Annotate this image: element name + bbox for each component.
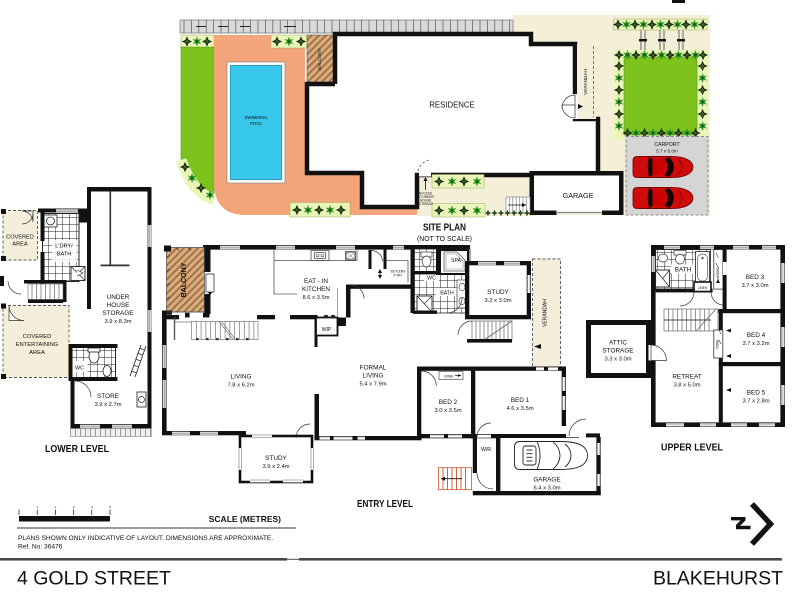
- svg-text:3.7 x 3.0m: 3.7 x 3.0m: [741, 283, 768, 289]
- svg-text:SITE PLAN: SITE PLAN: [423, 222, 466, 234]
- svg-text:STUDY: STUDY: [487, 289, 509, 296]
- svg-text:5.4 x 7.9m: 5.4 x 7.9m: [359, 382, 386, 388]
- svg-text:ENTERTAINING: ENTERTAINING: [16, 342, 59, 348]
- svg-text:FORMAL: FORMAL: [360, 365, 387, 372]
- svg-text:LIVING: LIVING: [363, 373, 384, 380]
- svg-text:ENTRY LEVEL: ENTRY LEVEL: [357, 499, 413, 510]
- svg-text:VERANDAH: VERANDAH: [583, 69, 588, 95]
- svg-text:WIP: WIP: [322, 327, 332, 333]
- svg-text:BALCONY: BALCONY: [181, 262, 188, 297]
- svg-text:STUDY: STUDY: [265, 455, 287, 462]
- svg-text:BED 5: BED 5: [747, 390, 766, 397]
- svg-text:KITCHEN: KITCHEN: [302, 286, 330, 293]
- svg-text:PLANS SHOWN ONLY INDICATIVE OF: PLANS SHOWN ONLY INDICATIVE OF LAYOUT. D…: [18, 535, 273, 542]
- svg-text:STORAGE: STORAGE: [602, 348, 633, 355]
- svg-text:BLAKEHURST: BLAKEHURST: [653, 568, 783, 590]
- svg-text:STORAGE: STORAGE: [418, 202, 434, 206]
- svg-text:8.6 x 3.5m: 8.6 x 3.5m: [302, 295, 329, 301]
- svg-text:CARPORT: CARPORT: [654, 142, 680, 148]
- svg-text:(NOT TO SCALE): (NOT TO SCALE): [417, 234, 472, 243]
- svg-text:UPPER LEVEL: UPPER LEVEL: [661, 443, 723, 454]
- svg-text:RESIDENCE: RESIDENCE: [429, 101, 475, 110]
- svg-text:ROBE: ROBE: [444, 375, 453, 379]
- svg-text:AREA: AREA: [29, 350, 45, 356]
- svg-text:BATH: BATH: [675, 267, 692, 274]
- svg-text:ROBE: ROBE: [716, 267, 720, 276]
- svg-text:6.4 x 3.0m: 6.4 x 3.0m: [533, 486, 560, 492]
- svg-text:GARAGE: GARAGE: [563, 191, 594, 200]
- svg-text:Ref. No: 36476: Ref. No: 36476: [18, 544, 63, 551]
- svg-text:SCALE (METRES): SCALE (METRES): [209, 514, 281, 524]
- svg-text:WC: WC: [75, 366, 84, 372]
- svg-text:BED 1: BED 1: [511, 397, 530, 404]
- svg-text:COVERED: COVERED: [6, 235, 34, 241]
- svg-text:BED 3: BED 3: [746, 274, 765, 281]
- svg-text:ROBE: ROBE: [716, 339, 720, 348]
- svg-text:3.7 x 2.8m: 3.7 x 2.8m: [742, 399, 769, 405]
- svg-text:7.8 x 6.2m: 7.8 x 6.2m: [227, 383, 254, 389]
- svg-text:3.2 x 3.0m: 3.2 x 3.0m: [484, 298, 511, 304]
- svg-text:BED 2: BED 2: [439, 399, 458, 406]
- svg-text:ATTIC: ATTIC: [609, 340, 627, 347]
- svg-text:BED 4: BED 4: [747, 332, 766, 339]
- svg-text:4 GOLD STREET: 4 GOLD STREET: [17, 568, 171, 590]
- svg-text:3.3 x 3.0m: 3.3 x 3.0m: [604, 357, 631, 363]
- svg-text:BATH: BATH: [57, 252, 72, 258]
- svg-text:5.7 x 6.0m: 5.7 x 6.0m: [656, 149, 678, 154]
- svg-text:SPA: SPA: [451, 258, 462, 264]
- svg-text:POOL: POOL: [250, 121, 263, 126]
- svg-text:BATH: BATH: [440, 291, 454, 297]
- svg-text:BALCONY: BALCONY: [317, 48, 322, 70]
- svg-text:UNDER: UNDER: [107, 294, 130, 301]
- svg-text:AREA: AREA: [12, 242, 28, 248]
- svg-text:3.0 x 3.5m: 3.0 x 3.5m: [434, 408, 461, 414]
- svg-text:SWIMMING: SWIMMING: [245, 115, 269, 120]
- svg-text:3.7 x 3.2m: 3.7 x 3.2m: [742, 341, 769, 347]
- svg-text:WIR: WIR: [481, 447, 491, 453]
- svg-text:3.9 x 2.4m: 3.9 x 2.4m: [262, 464, 289, 470]
- svg-text:LOWER LEVEL: LOWER LEVEL: [45, 444, 109, 455]
- svg-text:WC: WC: [427, 276, 436, 282]
- svg-text:LINEN: LINEN: [698, 286, 708, 290]
- svg-text:STORE: STORE: [97, 393, 119, 400]
- svg-text:LIVING: LIVING: [231, 374, 252, 381]
- svg-text:3.8 x 5.0m: 3.8 x 5.0m: [673, 383, 700, 389]
- svg-text:4.6 x 3.5m: 4.6 x 3.5m: [506, 406, 533, 412]
- svg-text:VERANDAH: VERANDAH: [543, 299, 549, 327]
- svg-text:GARAGE: GARAGE: [533, 477, 560, 484]
- svg-text:HOUSE: HOUSE: [107, 302, 130, 309]
- svg-text:STORAGE: STORAGE: [102, 310, 133, 317]
- svg-text:COVERED: COVERED: [23, 334, 52, 340]
- svg-text:3.9 x 2.7m: 3.9 x 2.7m: [94, 402, 121, 408]
- svg-text:L'DRY/: L'DRY/: [55, 244, 73, 250]
- svg-text:3.9 x 8.3m: 3.9 x 8.3m: [104, 319, 131, 325]
- svg-text:RETREAT: RETREAT: [672, 374, 701, 381]
- svg-text:EAT - IN: EAT - IN: [304, 278, 328, 285]
- svg-text:P'TRY: P'TRY: [393, 274, 403, 278]
